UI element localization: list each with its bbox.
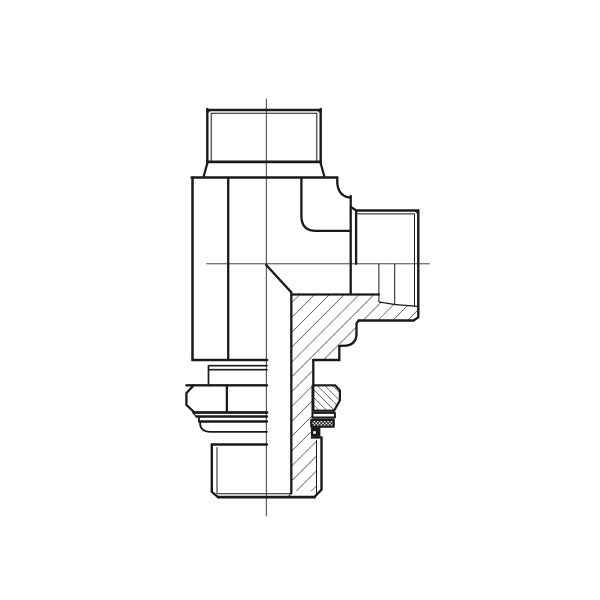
body-block-path [266, 265, 291, 292]
locknut-section-path [313, 385, 340, 410]
ed-seal-section-path [313, 431, 316, 434]
ed-seal-left-path [200, 423, 267, 432]
top-port-path [204, 163, 325, 176]
elbow-fitting-drawing [0, 0, 600, 600]
body-block-path [301, 178, 350, 231]
ed-seal-section-path [313, 413, 335, 418]
top-port-path [207, 109, 320, 163]
ed-seal-left [193, 413, 267, 444]
cad-drawing-canvas [0, 0, 600, 600]
ed-seal-section-path [311, 420, 333, 427]
top-port-path [211, 113, 317, 160]
section-hatch-body-path [291, 295, 417, 492]
ed-seal-section [311, 413, 335, 438]
locknut-path [186, 385, 193, 411]
washer [209, 366, 268, 386]
section-hatch-body [291, 295, 417, 492]
locknut [186, 385, 267, 412]
body-block-path [337, 178, 350, 198]
locknut-section [313, 385, 340, 410]
top-port [204, 109, 325, 176]
